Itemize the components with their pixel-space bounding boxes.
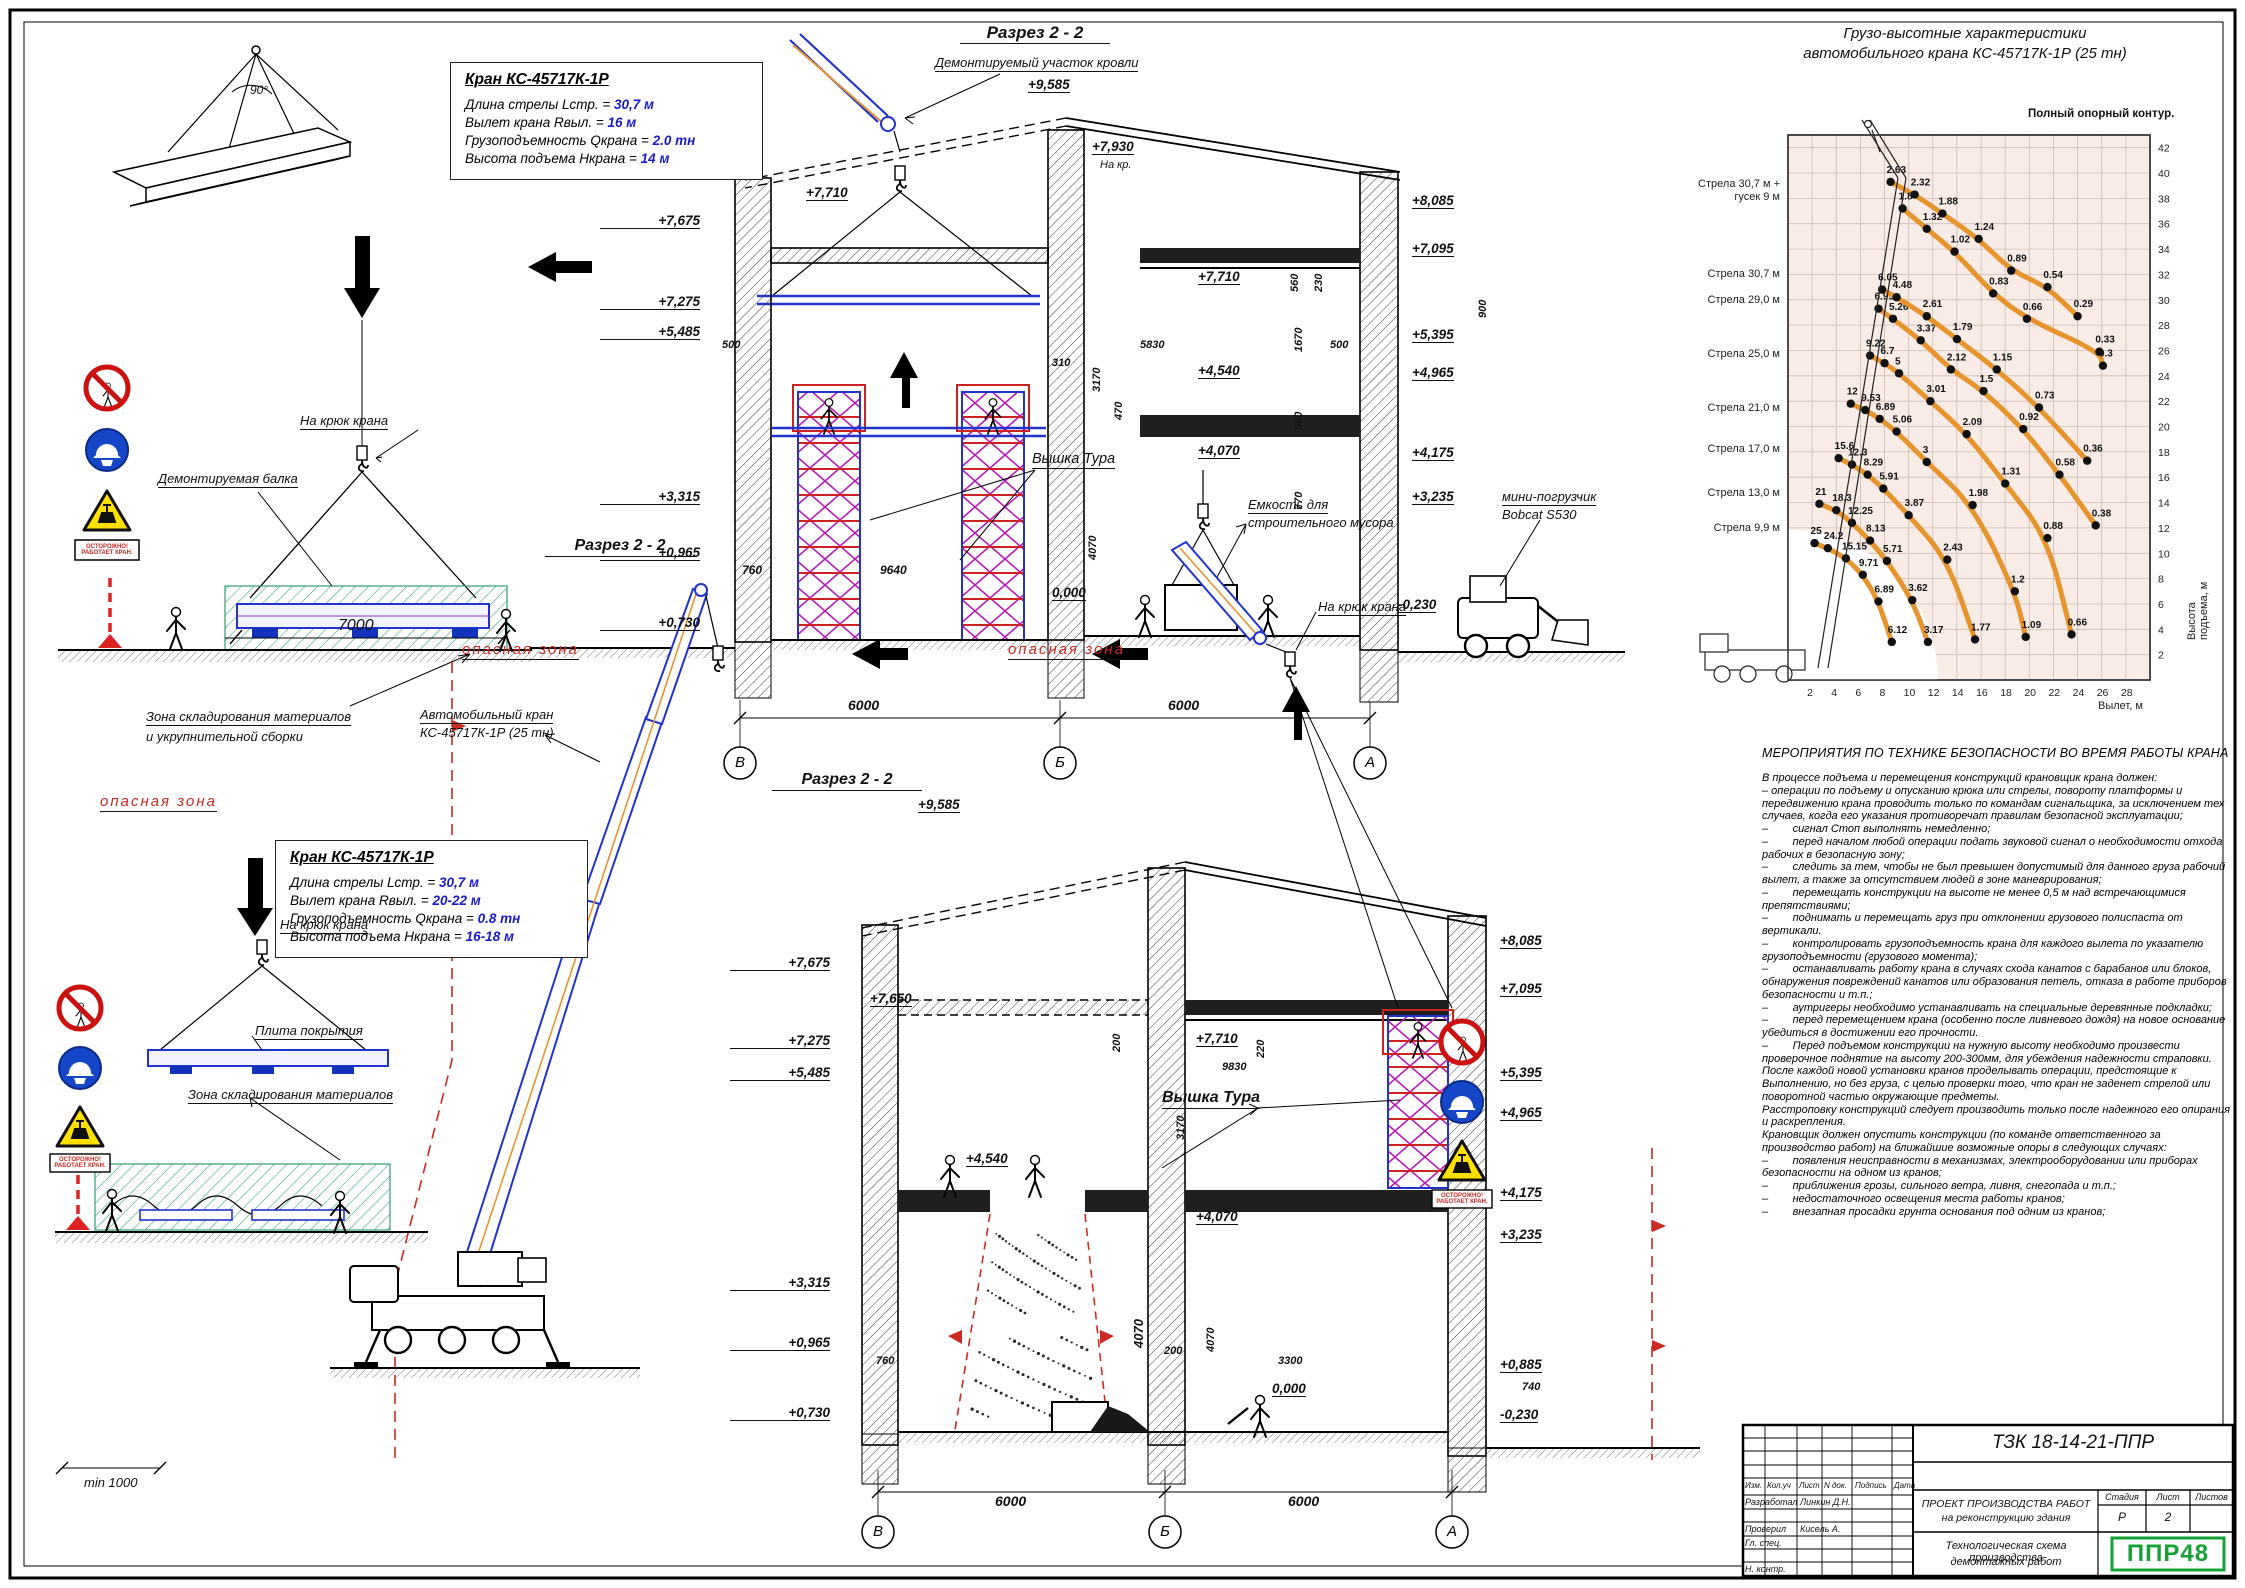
- beam-staging: [58, 320, 532, 706]
- elevation-mark: +4,965: [1412, 366, 1454, 381]
- safety-signs-left-top: [75, 367, 139, 560]
- spec-value: 2.0 тн: [653, 133, 696, 148]
- elevation-mark: +4,175: [1500, 1186, 1542, 1201]
- svg-text:4.48: 4.48: [1893, 280, 1913, 291]
- elevation-mark: +7,930: [1092, 140, 1134, 155]
- svg-text:12: 12: [1847, 387, 1859, 398]
- min-dim: min 1000: [84, 1476, 137, 1490]
- plate-label: Плита покрытия: [255, 1024, 363, 1040]
- elevation-mark: +0,965: [730, 1336, 830, 1351]
- svg-text:1.02: 1.02: [1951, 235, 1971, 246]
- dim: 3170: [1176, 1116, 1188, 1140]
- dim: 4070: [1088, 536, 1100, 560]
- tb-row-label: Н. контр.: [1745, 1564, 1786, 1574]
- boom-config-label: Стрела 29,0 м: [1694, 294, 1780, 307]
- elevation-mark: +7,710: [1198, 270, 1240, 285]
- svg-text:8: 8: [1880, 687, 1886, 699]
- load-chart: 2524.215.159.716.896.122118.312.258.135.…: [1638, 120, 2170, 830]
- dim: 4070: [1206, 1328, 1218, 1352]
- spec-label: Грузоподъемность Qкрана =: [465, 133, 653, 148]
- svg-text:1.88: 1.88: [1938, 197, 1958, 208]
- sheet-label: Лист: [2146, 1492, 2190, 1502]
- svg-text:18.3: 18.3: [1832, 493, 1852, 504]
- grid-axis-bubble: Б: [1149, 1523, 1181, 1540]
- svg-text:6.89: 6.89: [1876, 402, 1896, 413]
- svg-text:0.58: 0.58: [2056, 458, 2076, 469]
- dim: 6000: [995, 1494, 1026, 1509]
- elevation-mark: +0,730: [600, 616, 700, 631]
- tb-row-value: Линкин Д.Н.: [1800, 1497, 1851, 1507]
- elevation-mark: +7,675: [730, 956, 830, 971]
- stage-label: Стадия: [2098, 1492, 2146, 1502]
- boom-config-label: Стрела 30,7 м: [1694, 268, 1780, 281]
- danger-zone-label: опасная зона: [1008, 642, 1125, 660]
- svg-text:28: 28: [2121, 687, 2133, 699]
- dim: 3300: [1278, 1356, 1302, 1368]
- svg-text:15.15: 15.15: [1842, 541, 1867, 552]
- svg-text:3.01: 3.01: [1926, 384, 1946, 395]
- crane-boom-icon: [790, 34, 900, 152]
- tb-row-label: Разработал: [1745, 1497, 1797, 1507]
- svg-text:3.37: 3.37: [1917, 323, 1937, 334]
- svg-text:12: 12: [2158, 523, 2170, 535]
- svg-text:4: 4: [1831, 687, 1837, 699]
- tb-col: N док.: [1824, 1481, 1847, 1490]
- svg-text:2: 2: [1807, 687, 1813, 699]
- elevation-mark: +5,395: [1412, 328, 1454, 343]
- elevation-mark: +4,965: [1500, 1106, 1542, 1121]
- dim: 6000: [848, 698, 879, 713]
- svg-text:0.36: 0.36: [2083, 444, 2103, 455]
- y-axis-label: Высота подъема, м: [2186, 581, 2210, 640]
- svg-text:1.77: 1.77: [1971, 622, 1991, 633]
- svg-text:1.32: 1.32: [1923, 212, 1943, 223]
- safety-measures: МЕРОПРИЯТИЯ ПО ТЕХНИКЕ БЕЗОПАСНОСТИ ВО В…: [1762, 746, 2236, 1218]
- dim: 6000: [1168, 698, 1199, 713]
- bin-label-2: строительного мусора: [1248, 516, 1394, 530]
- svg-text:0.29: 0.29: [2074, 299, 2094, 310]
- dim: 3170: [1092, 368, 1104, 392]
- dim: 760: [876, 1356, 894, 1368]
- grid-axis-bubble: А: [1354, 754, 1386, 771]
- elevation-mark: +9,585: [918, 798, 960, 813]
- dim: 900: [1478, 300, 1490, 318]
- svg-text:8.29: 8.29: [1864, 458, 1884, 469]
- svg-text:3.87: 3.87: [1905, 498, 1925, 509]
- x-axis-label: Вылет, м: [2098, 700, 2143, 712]
- safety-paragraphs: В процессе подъема и перемещения констру…: [1762, 772, 2236, 1218]
- project-name-1: ПРОЕКТ ПРОИЗВОДСТВА РАБОТ: [1920, 1498, 2092, 1510]
- hook-label: На крюк крана: [1318, 600, 1406, 616]
- svg-text:5.06: 5.06: [1893, 415, 1913, 426]
- svg-text:1.8: 1.8: [1899, 192, 1913, 203]
- svg-text:24.2: 24.2: [1824, 531, 1844, 542]
- svg-text:18: 18: [2158, 447, 2170, 459]
- svg-text:8.13: 8.13: [1866, 524, 1886, 535]
- tb-row-label: Гл. спец.: [1745, 1538, 1782, 1548]
- elevation-mark: +3,235: [1500, 1228, 1542, 1243]
- dim: 220: [1256, 1040, 1268, 1058]
- svg-text:20: 20: [2158, 422, 2170, 434]
- spec-label: Вылет крана Rвыл. =: [290, 893, 432, 908]
- svg-text:42: 42: [2158, 143, 2170, 155]
- elevation-mark: +9,585: [1028, 78, 1070, 93]
- svg-text:0.89: 0.89: [2007, 254, 2027, 265]
- svg-text:12: 12: [1928, 687, 1940, 699]
- svg-text:14: 14: [2158, 498, 2170, 510]
- elevation-mark: +5,485: [730, 1066, 830, 1081]
- tb-col: Дата: [1894, 1481, 1915, 1490]
- dim: 200: [1164, 1346, 1182, 1358]
- crane-spec-title: Кран КС-45717К-1Р: [465, 71, 750, 89]
- svg-text:24: 24: [2158, 371, 2170, 383]
- up-arrow: [890, 352, 918, 408]
- svg-text:0.73: 0.73: [2035, 391, 2055, 402]
- bobcat-label-2: Bobcat S530: [1502, 508, 1576, 522]
- dim: 6000: [1288, 1494, 1319, 1509]
- bobcat-loader: [1458, 576, 1588, 657]
- dim: 560: [1290, 274, 1302, 292]
- svg-text:10: 10: [2158, 548, 2170, 560]
- sheets-label: Листов: [2190, 1492, 2233, 1502]
- spec-label: Длина стрелы Lстр. =: [465, 97, 614, 112]
- dim: 310: [1052, 358, 1070, 370]
- spec-value: 20-22 м: [432, 893, 480, 908]
- svg-text:0.83: 0.83: [1989, 276, 2009, 287]
- spec-value: 30,7 м: [439, 875, 479, 890]
- elevation-mark: +4,175: [1412, 446, 1454, 461]
- bobcat-label-1: мини-погрузчик: [1502, 490, 1596, 506]
- svg-text:6.89: 6.89: [1875, 584, 1895, 595]
- warning-plate-text: ОСТОРОЖНО! РАБОТАЕТ КРАН.: [1434, 1193, 1490, 1206]
- svg-text:5.91: 5.91: [1879, 472, 1899, 483]
- svg-text:30: 30: [2158, 295, 2170, 307]
- elevation-mark: +0,730: [730, 1406, 830, 1421]
- svg-text:0.92: 0.92: [2019, 412, 2039, 423]
- svg-text:24: 24: [2073, 687, 2085, 699]
- svg-text:28: 28: [2158, 320, 2170, 332]
- dim: 500: [722, 340, 740, 352]
- svg-text:0.38: 0.38: [2092, 508, 2112, 519]
- truck-crane-label-1: Автомобильный кран: [420, 708, 553, 724]
- spec-value: 0.8 тн: [478, 911, 521, 926]
- scheme2: [330, 542, 1700, 1548]
- doc-title-2: демонтажных работ: [1920, 1556, 2092, 1568]
- svg-text:1.31: 1.31: [2001, 467, 2021, 478]
- spec-label: Высота подъема Нкрана =: [465, 151, 641, 166]
- spec-value: 14 м: [641, 151, 670, 166]
- warning-plate-text: ОСТОРОЖНО! РАБОТАЕТ КРАН.: [77, 544, 137, 557]
- tb-col: Лист: [1799, 1481, 1820, 1490]
- dim: 9640: [880, 564, 907, 577]
- tb-col: Подпись: [1855, 1481, 1887, 1490]
- svg-text:1.5: 1.5: [1979, 374, 1993, 385]
- scaffold-tower: [793, 385, 865, 640]
- sling-angle: 90°: [250, 84, 268, 97]
- svg-text:2.12: 2.12: [1947, 352, 1967, 363]
- svg-text:0.88: 0.88: [2043, 521, 2063, 532]
- dim: 200: [1112, 1034, 1124, 1052]
- svg-text:26: 26: [2158, 345, 2170, 357]
- svg-text:10: 10: [1904, 687, 1916, 699]
- svg-text:5: 5: [1895, 356, 1901, 367]
- boom-config-label: Стрела 9,9 м: [1694, 522, 1780, 535]
- svg-text:0.3: 0.3: [2099, 349, 2113, 360]
- spec-label: Вылет крана Rвыл. =: [465, 115, 607, 130]
- tb-col: Изм.: [1745, 1481, 1762, 1490]
- svg-text:9.71: 9.71: [1859, 558, 1879, 569]
- dim: 470: [1114, 402, 1126, 420]
- svg-text:0.33: 0.33: [2095, 335, 2115, 346]
- boom-config-label: Стрела 17,0 м: [1694, 443, 1780, 456]
- dim: 940: [1294, 412, 1306, 430]
- elevation-mark: +7,650: [870, 992, 912, 1007]
- svg-text:20: 20: [2024, 687, 2036, 699]
- tower-label: Вышка Тура: [1162, 1090, 1260, 1109]
- danger-zone-label: опасная зона: [462, 642, 579, 660]
- drawing-sheet: 2524.215.159.716.896.122118.312.258.135.…: [0, 0, 2245, 1588]
- svg-text:1.15: 1.15: [1993, 352, 2013, 363]
- stage-value: Р: [2098, 1510, 2146, 1524]
- elevation-mark: +7,710: [806, 186, 848, 201]
- na-kr-label: На кр.: [1100, 160, 1132, 172]
- chart-note: Полный опорный контур.: [2028, 108, 2174, 120]
- svg-text:25: 25: [1811, 526, 1823, 537]
- section-title-2b: Разрез 2 - 2: [772, 772, 922, 791]
- roof-demolition-label: Демонтируемый участок кровли: [935, 56, 1138, 72]
- section-title-2: Разрез 2 - 2: [545, 538, 695, 557]
- elevation-mark: +3,315: [600, 490, 700, 505]
- spec-value: 16-18 м: [466, 929, 514, 944]
- svg-text:3.17: 3.17: [1924, 625, 1944, 636]
- sheet-value: 2: [2146, 1510, 2190, 1524]
- tb-row-value: Кисель А.: [1800, 1524, 1840, 1534]
- project-name-2: на реконструкцию здания: [1920, 1512, 2092, 1524]
- svg-text:16: 16: [1976, 687, 1988, 699]
- grid-axis-bubble: В: [862, 1523, 894, 1540]
- dim: 500: [1330, 340, 1348, 352]
- bin-label-1: Емкость для: [1248, 498, 1328, 514]
- warning-plate-text: ОСТОРОЖНО! РАБОТАЕТ КРАН.: [52, 1157, 108, 1170]
- svg-text:8: 8: [2158, 574, 2164, 586]
- svg-text:6.12: 6.12: [1888, 625, 1908, 636]
- svg-text:2.09: 2.09: [1963, 417, 1983, 428]
- boom-config-label: Стрела 13,0 м: [1694, 487, 1780, 500]
- svg-text:1.09: 1.09: [2022, 620, 2042, 631]
- svg-text:4: 4: [2158, 624, 2164, 636]
- crane-spec-box-2: Кран КС-45717К-1Р Длина стрелы Lстр. = 3…: [275, 840, 588, 958]
- svg-text:21: 21: [1815, 487, 1827, 498]
- danger-zone-label: опасная зона: [100, 794, 217, 812]
- svg-text:0.54: 0.54: [2043, 270, 2063, 281]
- svg-text:3: 3: [1923, 445, 1929, 456]
- elevation-mark: +7,275: [730, 1034, 830, 1049]
- svg-text:16: 16: [2158, 472, 2170, 484]
- left-arrow: [528, 252, 592, 282]
- elevation-mark: +8,085: [1412, 194, 1454, 209]
- dim: 9830: [1222, 1062, 1246, 1074]
- safety-heading: МЕРОПРИЯТИЯ ПО ТЕХНИКЕ БЕЗОПАСНОСТИ ВО В…: [1762, 746, 2236, 760]
- elevation-mark: 0,000: [1052, 586, 1086, 601]
- elevation-mark: +4,540: [966, 1152, 1008, 1167]
- svg-text:6: 6: [1855, 687, 1861, 699]
- elevation-mark: +7,095: [1500, 982, 1542, 997]
- dim: 760: [742, 564, 762, 577]
- svg-text:40: 40: [2158, 168, 2170, 180]
- elevation-mark: 0,000: [1272, 1382, 1306, 1397]
- rigging-diagram: [114, 46, 350, 206]
- svg-text:0.66: 0.66: [2023, 302, 2043, 313]
- svg-text:2: 2: [2158, 650, 2164, 662]
- svg-text:36: 36: [2158, 219, 2170, 231]
- dim-7000: 7000: [338, 618, 374, 635]
- svg-text:5.71: 5.71: [1883, 544, 1903, 555]
- elevation-mark: +7,675: [600, 214, 700, 229]
- spec-value: 16 м: [607, 115, 636, 130]
- tb-row-label: Проверил: [1745, 1524, 1786, 1534]
- svg-text:14: 14: [1952, 687, 1964, 699]
- svg-text:6.7: 6.7: [1881, 346, 1895, 357]
- elevation-mark: +3,315: [730, 1276, 830, 1291]
- zone-label-2: и укрупнительной сборки: [146, 730, 303, 744]
- truck-crane-label-2: КС-45717К-1Р (25 тн): [420, 726, 554, 740]
- dim: 740: [1522, 1382, 1540, 1394]
- hook-label: На крюк крана: [280, 918, 368, 934]
- boom-config-label: Стрела 30,7 м + гусек 9 м: [1694, 178, 1780, 203]
- boom-config-label: Стрела 21,0 м: [1694, 402, 1780, 415]
- svg-text:34: 34: [2158, 244, 2170, 256]
- grid-axis-bubble: В: [724, 754, 756, 771]
- beam-label: Демонтируемая балка: [158, 472, 298, 488]
- section-title-1: Разрез 2 - 2: [960, 24, 1110, 44]
- doc-code: ТЗК 18-14-21-ППР: [1913, 1432, 2233, 1454]
- svg-text:32: 32: [2158, 269, 2170, 281]
- svg-text:1.2: 1.2: [2011, 574, 2025, 585]
- svg-text:2.43: 2.43: [1943, 543, 1963, 554]
- elevation-mark: +4,070: [1198, 444, 1240, 459]
- debris-chute: [948, 1214, 1114, 1430]
- dim: 4070: [1132, 1319, 1146, 1348]
- elevation-mark: +4,070: [1196, 1210, 1238, 1225]
- grid-axis-bubble: Б: [1044, 754, 1076, 771]
- spec-value: 30,7 м: [614, 97, 654, 112]
- scaffold-tower: [957, 385, 1029, 640]
- elevation-mark: +8,085: [1500, 934, 1542, 949]
- svg-text:1.79: 1.79: [1953, 322, 1973, 333]
- zone-label: Зона складирования материалов: [188, 1088, 393, 1104]
- dim: 230: [1314, 274, 1326, 292]
- dim: 1670: [1294, 328, 1306, 352]
- svg-text:2.61: 2.61: [1923, 299, 1943, 310]
- svg-text:1.24: 1.24: [1975, 222, 1995, 233]
- elevation-mark: +7,095: [1412, 242, 1454, 257]
- tower-label: Вышка Тура: [1032, 452, 1115, 469]
- chart-title-1: Грузо-высотные характеристики: [1790, 26, 2140, 42]
- svg-text:3.62: 3.62: [1908, 583, 1928, 594]
- elevation-mark: +3,235: [1412, 490, 1454, 505]
- svg-text:6: 6: [2158, 599, 2164, 611]
- spec-label: Длина стрелы Lстр. =: [290, 875, 439, 890]
- svg-text:0.66: 0.66: [2068, 617, 2088, 628]
- elevation-mark: +7,275: [600, 295, 700, 310]
- svg-text:38: 38: [2158, 193, 2170, 205]
- elevation-mark: +5,395: [1500, 1066, 1542, 1081]
- truck-crane: [330, 584, 724, 1378]
- crane-spec-box-1: Кран КС-45717К-1Р Длина стрелы Lстр. = 3…: [450, 62, 763, 180]
- svg-text:18: 18: [2000, 687, 2012, 699]
- logo: ППР48: [2112, 1540, 2224, 1568]
- chart-title-2: автомобильного крана КС-45717К-1Р (25 тн…: [1755, 46, 2175, 62]
- hook-label: На крюк крана: [300, 414, 388, 430]
- boom-config-label: Стрела 25,0 м: [1694, 348, 1780, 361]
- svg-text:22: 22: [2158, 396, 2170, 408]
- crane-spec-title: Кран КС-45717К-1Р: [290, 849, 575, 867]
- svg-text:2.32: 2.32: [1911, 178, 1931, 189]
- elevation-mark: +4,540: [1198, 364, 1240, 379]
- elevation-mark: +5,485: [600, 325, 700, 340]
- tb-col: Кол.уч: [1767, 1481, 1791, 1490]
- svg-text:1.98: 1.98: [1969, 488, 1989, 499]
- dim: 5830: [1140, 340, 1164, 352]
- svg-text:22: 22: [2048, 687, 2060, 699]
- elevation-mark: +7,710: [1196, 1032, 1238, 1047]
- elevation-mark: +0,885: [1500, 1358, 1542, 1373]
- svg-text:26: 26: [2097, 687, 2109, 699]
- elevation-mark: -0,230: [1500, 1408, 1538, 1423]
- grid-axis-bubble: А: [1436, 1523, 1468, 1540]
- zone-label-1: Зона складирования материалов: [146, 710, 351, 726]
- down-arrow: [344, 236, 380, 318]
